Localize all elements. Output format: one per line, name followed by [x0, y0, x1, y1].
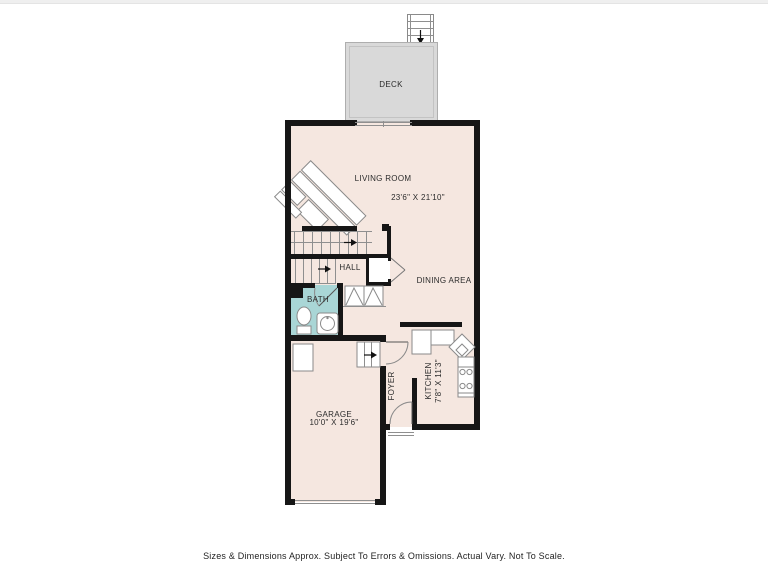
- front-door-threshold: [388, 433, 414, 436]
- toilet-icon: [297, 307, 311, 325]
- living-room-dims: 23'6" X 21'10": [391, 194, 445, 202]
- top-border-strip: [0, 0, 768, 4]
- utility-unit: [293, 344, 313, 371]
- floorplan-image: DECK LIVING ROOM 23'6" X 21'10" DINING A…: [0, 0, 768, 576]
- dining-area-label: DINING AREA: [417, 277, 472, 285]
- bath-label: BATH: [307, 296, 329, 304]
- kitchen-name: KITCHEN: [424, 362, 433, 399]
- hall-closet-floor: [366, 255, 390, 285]
- disclaimer-text: Sizes & Dimensions Approx. Subject To Er…: [0, 551, 768, 561]
- garage-dims: 10'0" X 19'6": [309, 419, 358, 427]
- bath-chase: [291, 287, 303, 298]
- kitchen-dims: 7'8" X 11'3": [435, 359, 443, 403]
- deck-label: DECK: [379, 81, 402, 89]
- closet-shelves: [343, 286, 386, 307]
- foyer-label: FOYER: [388, 371, 396, 400]
- deck-stairs: [408, 15, 434, 45]
- kitchen-label: KITCHEN7'8" X 11'3": [425, 359, 443, 403]
- living-room-label: LIVING ROOM: [355, 175, 412, 183]
- hall-label: HALL: [339, 264, 360, 272]
